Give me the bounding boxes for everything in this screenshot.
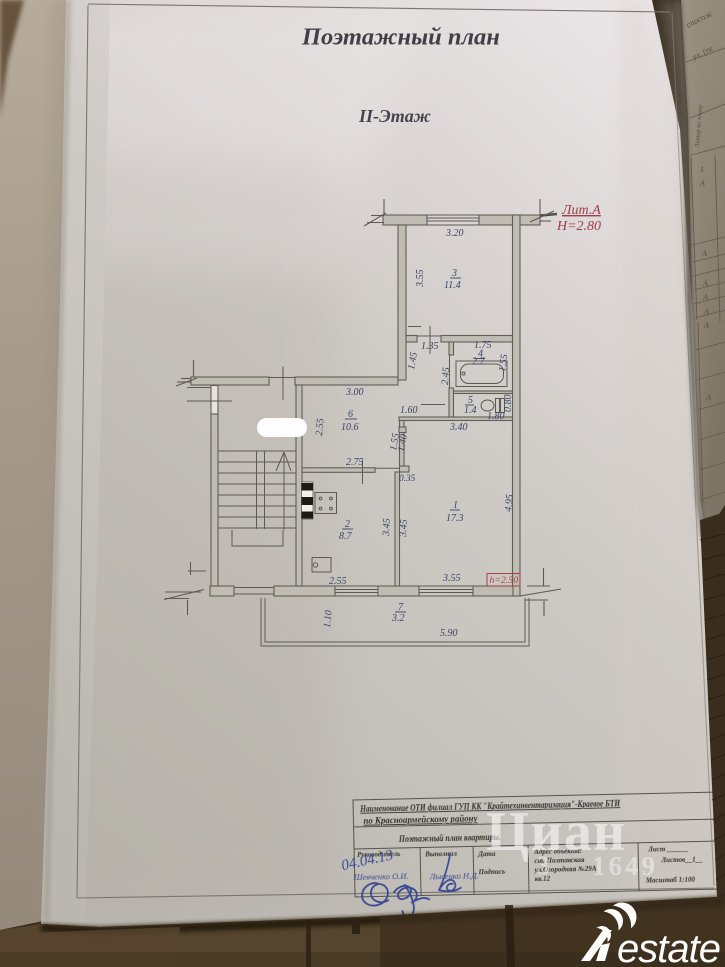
svg-text:А: А: [702, 293, 708, 302]
svg-text:3.45: 3.45: [398, 519, 410, 538]
svg-text:3.00: 3.00: [345, 387, 364, 398]
svg-text:2.55: 2.55: [314, 418, 326, 436]
svg-text:1.80: 1.80: [487, 411, 505, 422]
svg-text:1.60: 1.60: [400, 405, 418, 416]
svg-text:0.80: 0.80: [503, 395, 514, 413]
svg-text:h=2.50: h=2.50: [490, 575, 519, 586]
svg-text:4.95: 4.95: [503, 494, 516, 513]
svg-text:А: А: [702, 279, 708, 288]
svg-text:6: 6: [348, 409, 353, 420]
svg-text:3: 3: [451, 268, 457, 279]
svg-text:3.20: 3.20: [445, 228, 464, 239]
svg-text:Поэтажный план: Поэтажный план: [301, 24, 500, 51]
svg-text:А: А: [703, 321, 709, 330]
svg-text:Подпись: Подпись: [478, 868, 506, 877]
svg-text:3.2: 3.2: [391, 613, 405, 624]
svg-text:0.35: 0.35: [399, 474, 416, 484]
svg-text:Лысенко Н.Д.: Лысенко Н.Д.: [429, 870, 479, 881]
svg-text:8.7: 8.7: [339, 531, 353, 542]
svg-text:1: 1: [453, 500, 458, 511]
svg-text:1649: 1649: [592, 851, 658, 881]
svg-text:3.45: 3.45: [381, 518, 393, 537]
svg-text:1: 1: [700, 165, 704, 174]
svg-text:estate: estate: [617, 927, 720, 967]
svg-text:А: А: [703, 307, 709, 316]
svg-text:3.55: 3.55: [415, 270, 426, 289]
svg-text:Шевченко О.И.: Шевченко О.И.: [353, 871, 409, 882]
svg-text:10.6: 10.6: [341, 422, 359, 433]
svg-text:3.40: 3.40: [449, 422, 468, 433]
svg-text:17.3: 17.3: [446, 513, 464, 524]
svg-text:2.75: 2.75: [346, 457, 364, 468]
svg-text:3: 3: [537, 851, 550, 880]
svg-text:2: 2: [345, 519, 350, 530]
svg-text:2.45: 2.45: [440, 367, 452, 385]
svg-text:1.35: 1.35: [421, 341, 439, 352]
svg-text:11.4: 11.4: [444, 280, 461, 291]
svg-text:II-Этаж: II-Этаж: [358, 106, 431, 126]
svg-text:Листов__1__: Листов__1__: [660, 855, 703, 864]
svg-text:А: А: [699, 179, 705, 188]
svg-text:Лит.А: Лит.А: [561, 203, 601, 218]
svg-text:3.55: 3.55: [442, 573, 461, 584]
svg-text:А: А: [705, 393, 711, 402]
svg-text:1.10: 1.10: [322, 610, 334, 628]
svg-text:5.90: 5.90: [440, 628, 458, 639]
svg-text:1.4: 1.4: [464, 405, 477, 416]
svg-text:А: А: [701, 249, 707, 258]
svg-text:Выполнил: Выполнил: [424, 850, 457, 859]
svg-text:Н=2.80: Н=2.80: [556, 219, 601, 234]
svg-text:2.55: 2.55: [329, 576, 347, 587]
